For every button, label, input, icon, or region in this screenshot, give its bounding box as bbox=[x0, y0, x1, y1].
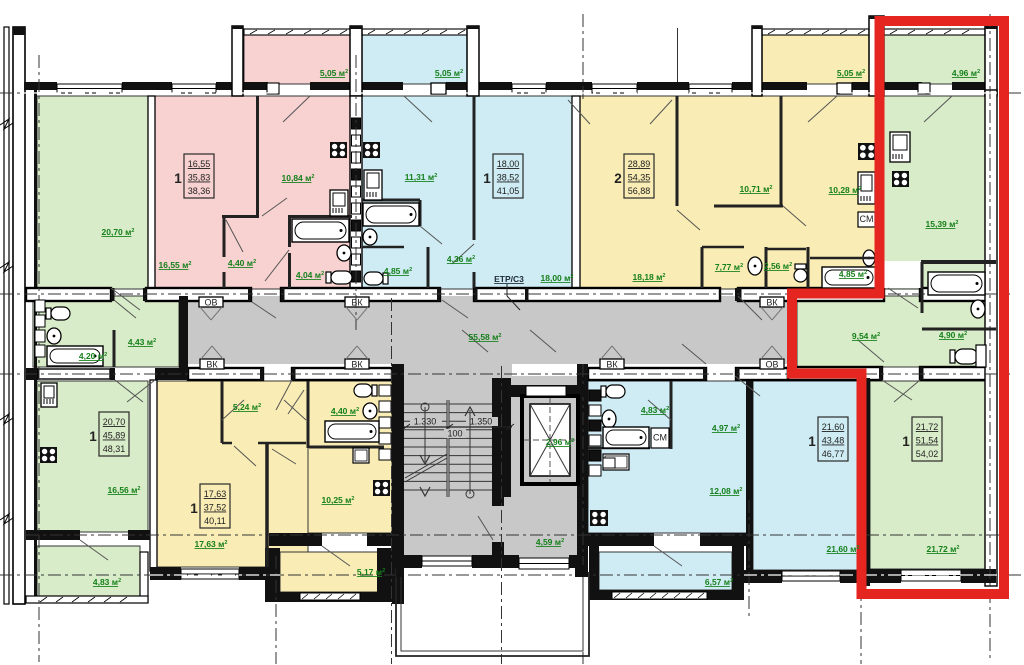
svg-text:4,20 м2: 4,20 м2 bbox=[79, 351, 107, 361]
svg-text:7,77 м2: 7,77 м2 bbox=[715, 262, 743, 272]
svg-text:41,05: 41,05 bbox=[497, 186, 520, 196]
svg-text:ОВ: ОВ bbox=[765, 360, 778, 370]
svg-text:ВК: ВК bbox=[206, 360, 218, 370]
svg-text:9,54 м2: 9,54 м2 bbox=[852, 331, 880, 341]
svg-text:18,00 м2: 18,00 м2 bbox=[541, 273, 574, 283]
svg-text:1: 1 bbox=[89, 429, 97, 444]
svg-text:48,31: 48,31 bbox=[103, 444, 126, 454]
svg-text:51,54: 51,54 bbox=[916, 436, 939, 446]
svg-text:1: 1 bbox=[190, 501, 198, 516]
svg-text:1: 1 bbox=[483, 171, 491, 186]
svg-text:40,11: 40,11 bbox=[204, 516, 226, 526]
svg-text:10,25 м2: 10,25 м2 bbox=[322, 495, 355, 505]
svg-text:1.350: 1.350 bbox=[470, 417, 493, 427]
svg-text:28,89: 28,89 bbox=[628, 159, 651, 169]
svg-text:5,17 м2: 5,17 м2 bbox=[357, 567, 385, 577]
svg-text:2,56 м2: 2,56 м2 bbox=[764, 261, 792, 271]
svg-text:5,24 м2: 5,24 м2 bbox=[233, 402, 261, 412]
svg-text:ОВ: ОВ bbox=[204, 298, 217, 308]
svg-text:21,60 м2: 21,60 м2 bbox=[827, 544, 860, 554]
svg-text:15,39 м2: 15,39 м2 bbox=[926, 219, 959, 229]
svg-text:35,83: 35,83 bbox=[188, 173, 211, 183]
svg-text:21,72 м2: 21,72 м2 bbox=[927, 544, 960, 554]
svg-text:10,84 м2: 10,84 м2 bbox=[282, 173, 315, 183]
svg-text:СМ: СМ bbox=[860, 214, 874, 224]
svg-text:10,28 м2: 10,28 м2 bbox=[829, 185, 862, 195]
svg-text:10,71 м2: 10,71 м2 bbox=[740, 184, 773, 194]
svg-text:1: 1 bbox=[808, 434, 816, 449]
svg-text:ВК: ВК bbox=[351, 360, 363, 370]
svg-text:6,57 м2: 6,57 м2 bbox=[705, 577, 733, 587]
svg-text:4,40 м2: 4,40 м2 bbox=[228, 258, 256, 268]
svg-text:20,70 м2: 20,70 м2 bbox=[102, 227, 135, 237]
svg-text:ВК: ВК bbox=[351, 298, 363, 308]
svg-text:12,08 м2: 12,08 м2 bbox=[710, 486, 743, 496]
svg-text:ВК: ВК bbox=[606, 360, 618, 370]
svg-text:17,63: 17,63 bbox=[204, 489, 227, 499]
svg-text:54,02: 54,02 bbox=[916, 449, 939, 459]
svg-text:5,05 м2: 5,05 м2 bbox=[320, 68, 348, 78]
svg-text:4,04 м2: 4,04 м2 bbox=[296, 270, 324, 280]
svg-text:4,83 м2: 4,83 м2 bbox=[641, 405, 669, 415]
svg-text:11,31 м2: 11,31 м2 bbox=[405, 172, 438, 182]
svg-text:21,60: 21,60 bbox=[822, 422, 845, 432]
svg-text:43,48: 43,48 bbox=[822, 436, 845, 446]
svg-text:16,56 м2: 16,56 м2 bbox=[108, 485, 141, 495]
svg-text:17,63 м2: 17,63 м2 bbox=[195, 539, 228, 549]
svg-text:16,55 м2: 16,55 м2 bbox=[159, 260, 192, 270]
svg-text:2: 2 bbox=[614, 171, 622, 186]
svg-text:4,97 м2: 4,97 м2 bbox=[712, 423, 740, 433]
svg-text:1: 1 bbox=[174, 171, 182, 186]
svg-text:38,36: 38,36 bbox=[188, 186, 211, 196]
svg-text:16,55: 16,55 bbox=[188, 159, 211, 169]
svg-text:2,96 м2: 2,96 м2 bbox=[546, 437, 574, 447]
svg-text:4,96 м2: 4,96 м2 bbox=[952, 68, 980, 78]
svg-text:4,90 м2: 4,90 м2 bbox=[939, 330, 967, 340]
svg-text:СМ: СМ bbox=[653, 433, 667, 443]
svg-text:55,58 м2: 55,58 м2 bbox=[469, 332, 502, 342]
svg-text:18,00: 18,00 bbox=[497, 159, 520, 169]
svg-text:18,18 м2: 18,18 м2 bbox=[633, 272, 666, 282]
svg-text:45,89: 45,89 bbox=[103, 431, 126, 441]
svg-text:46,77: 46,77 bbox=[822, 449, 845, 459]
svg-text:4,59 м2: 4,59 м2 bbox=[536, 537, 564, 547]
svg-text:37,52: 37,52 bbox=[204, 503, 227, 513]
svg-text:100: 100 bbox=[447, 429, 462, 439]
svg-text:5,05 м2: 5,05 м2 bbox=[837, 68, 865, 78]
svg-text:4,85 м2: 4,85 м2 bbox=[839, 269, 867, 279]
svg-text:21,72: 21,72 bbox=[916, 422, 939, 432]
svg-text:4,43 м2: 4,43 м2 bbox=[128, 337, 156, 347]
svg-text:4,85 м2: 4,85 м2 bbox=[384, 266, 412, 276]
svg-text:4,36 м2: 4,36 м2 bbox=[447, 254, 475, 264]
svg-text:5,05 м2: 5,05 м2 bbox=[435, 68, 463, 78]
svg-text:38,52: 38,52 bbox=[497, 173, 520, 183]
svg-text:ЕТР/С3: ЕТР/С3 bbox=[494, 274, 524, 284]
svg-text:54,35: 54,35 bbox=[628, 173, 651, 183]
svg-text:1: 1 bbox=[902, 434, 910, 449]
svg-text:20,70: 20,70 bbox=[103, 417, 126, 427]
svg-text:4,83 м2: 4,83 м2 bbox=[93, 577, 121, 587]
svg-text:ВК: ВК bbox=[766, 298, 778, 308]
svg-text:4,40 м2: 4,40 м2 bbox=[331, 406, 359, 416]
svg-text:56,88: 56,88 bbox=[628, 186, 651, 196]
